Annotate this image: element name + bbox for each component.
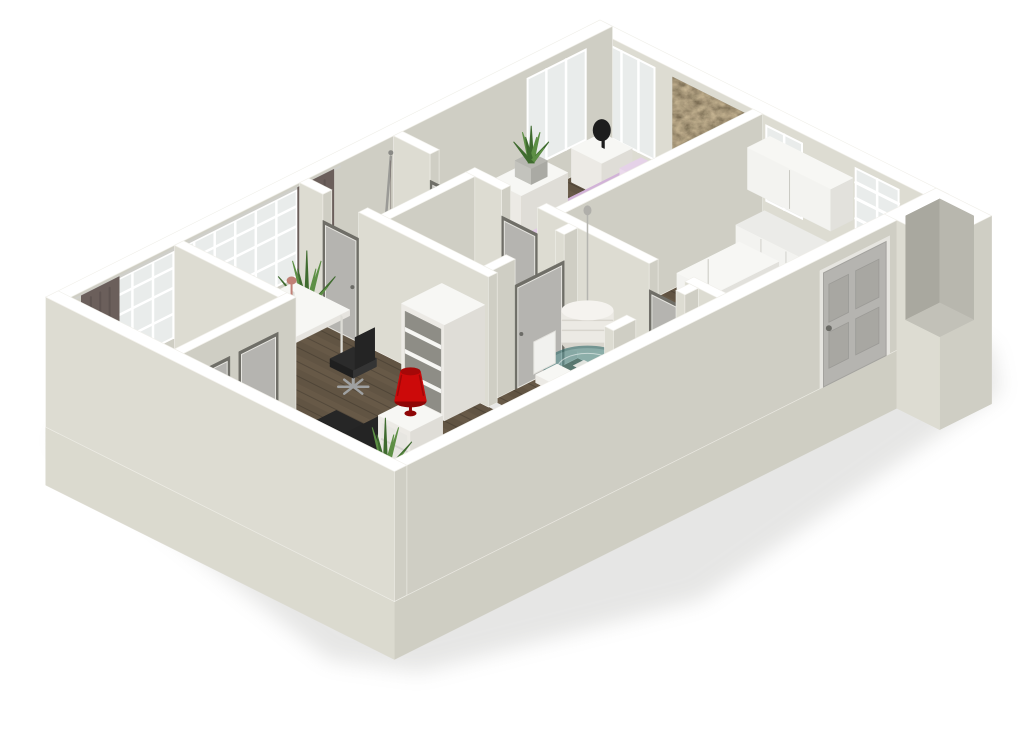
utility-shaft — [884, 188, 991, 430]
floorplan-canvas — [0, 0, 1024, 756]
floorplan-3d-render — [0, 0, 1024, 756]
